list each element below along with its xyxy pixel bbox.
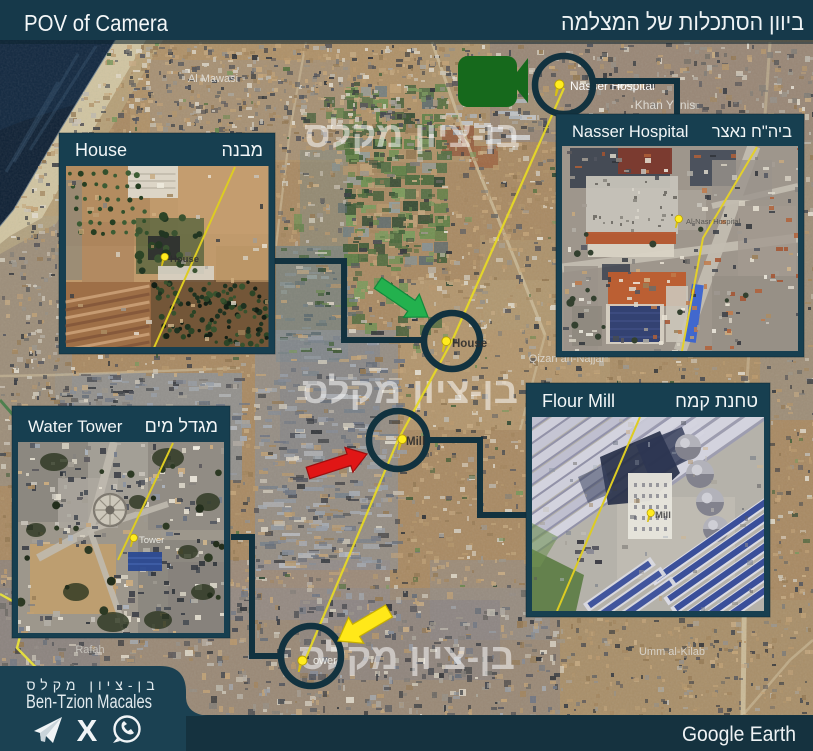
svg-text:Water Tower: Water Tower [28, 417, 123, 436]
svg-text:Tower: Tower [139, 535, 164, 546]
svg-text:טחנת קמח: טחנת קמח [675, 391, 758, 411]
svg-text:House: House [452, 338, 487, 350]
svg-text:ower: ower [313, 655, 337, 667]
svg-text:מגדל מים: מגדל מים [145, 416, 218, 436]
svg-text:Nasser Hospital: Nasser Hospital [572, 123, 688, 141]
svg-text:Mill: Mill [406, 436, 425, 448]
svg-text:בן-ציון מקלס: בן-ציון מקלס [302, 370, 518, 411]
svg-text:ביה"ח נאצר: ביה"ח נאצר [712, 123, 792, 141]
svg-text:Flour Mill: Flour Mill [542, 391, 615, 411]
svg-text:מבנה: מבנה [221, 140, 263, 160]
svg-text:House: House [75, 140, 127, 160]
svg-text:House: House [170, 254, 199, 265]
svg-text:Al-Nasr Hospital: Al-Nasr Hospital [686, 217, 741, 226]
svg-text:בן-ציון מקלס: בן-ציון מקלס [304, 114, 520, 155]
